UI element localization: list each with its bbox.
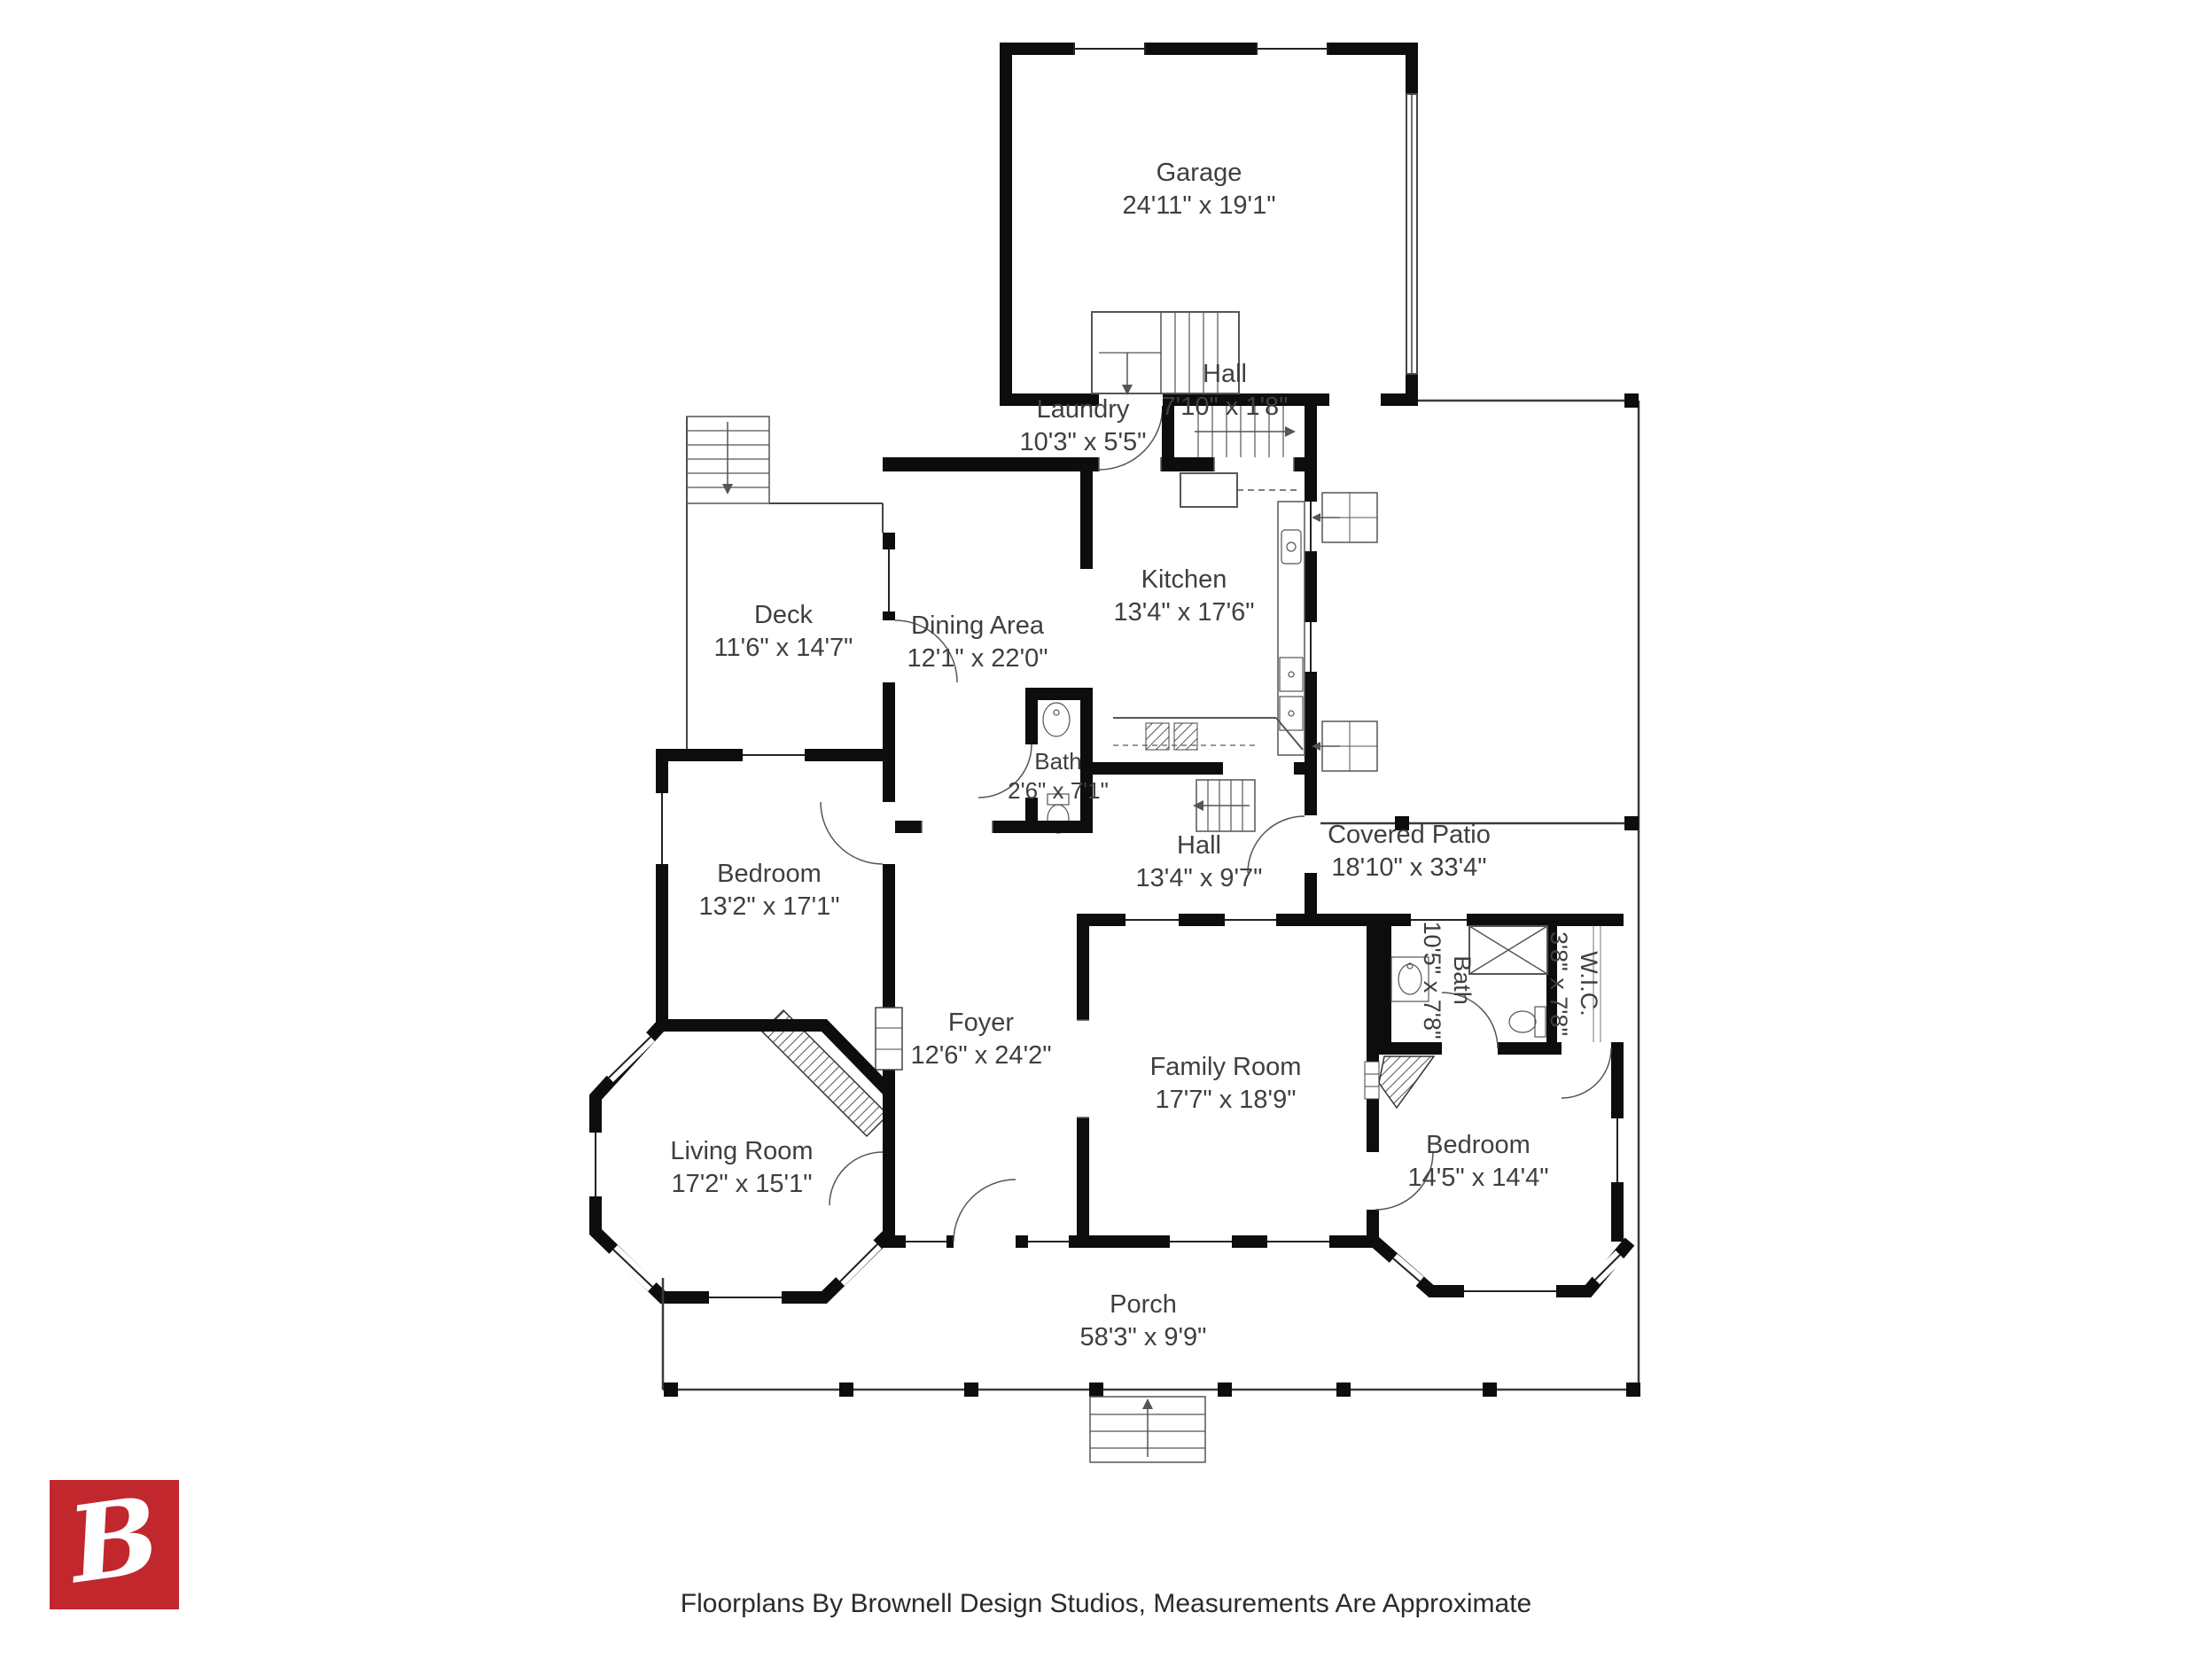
room-label-covered-patio: Covered Patio 18'10" x 33'4" <box>1328 819 1491 884</box>
room-name: Bedroom <box>1407 1129 1548 1162</box>
room-name: Garage <box>1122 157 1275 190</box>
room-label-dining: Dining Area 12'1" x 22'0" <box>907 610 1048 675</box>
room-name: Bath <box>1008 747 1109 776</box>
room-label-hall-upper: Hall 7'10" x 1'8" <box>1162 358 1289 424</box>
room-dims: 58'3" x 9'9" <box>1080 1321 1207 1354</box>
dining-west-window <box>883 549 895 611</box>
bedroom2-fireplace <box>1379 1056 1434 1108</box>
room-label-laundry: Laundry 10'3" x 5'5" <box>1020 393 1147 459</box>
room-label-hall-lower: Hall 13'4" x 9'7" <box>1136 829 1263 895</box>
room-label-bedroom-upper: Bedroom 13'2" x 17'1" <box>698 858 839 923</box>
room-name: Hall <box>1162 358 1289 391</box>
room-dims: 17'7" x 18'9" <box>1150 1084 1302 1117</box>
cased-opening-foyer-family <box>1077 1020 1089 1118</box>
room-dims: 7'10" x 1'8" <box>1162 391 1289 424</box>
deck-outline <box>687 417 883 749</box>
room-name: Bath <box>1447 921 1477 1039</box>
room-dims: 12'6" x 24'2" <box>910 1040 1051 1072</box>
patio-casement-window-1 <box>1312 493 1377 542</box>
room-dims: 10'5" x 7'8" <box>1417 921 1447 1039</box>
room-label-bath-main: Bath 10'5" x 7'8" <box>1417 921 1477 1039</box>
bedroom1-windows <box>656 749 805 864</box>
room-name: Kitchen <box>1113 564 1254 596</box>
room-label-bedroom-lower: Bedroom 14'5" x 14'4" <box>1407 1129 1548 1195</box>
bedroom2-chimney-box <box>1365 1062 1379 1099</box>
porch-steps <box>1090 1397 1205 1462</box>
lower-hall-walls <box>1093 762 1317 775</box>
deck-stairs <box>687 417 769 503</box>
room-name: W.I.C. <box>1574 931 1604 1036</box>
room-label-family-room: Family Room 17'7" x 18'9" <box>1150 1051 1302 1117</box>
room-dims: 14'5" x 14'4" <box>1407 1162 1548 1195</box>
room-dims: 18'10" x 33'4" <box>1328 852 1491 884</box>
room-label-garage: Garage 24'11" x 19'1" <box>1122 157 1275 222</box>
front-door-arc <box>954 1180 1016 1242</box>
room-name: Covered Patio <box>1328 819 1491 852</box>
room-name: Deck <box>714 599 853 632</box>
room-name: Dining Area <box>907 610 1048 643</box>
living-door-arc <box>829 1152 883 1205</box>
room-name: Hall <box>1136 829 1263 862</box>
room-dims: 3'8" x 7'8" <box>1544 931 1574 1036</box>
bedroom1-door-arc <box>821 802 883 864</box>
room-dims: 13'4" x 17'6" <box>1113 596 1254 629</box>
room-label-bath-small: Bath 2'6" x 7'1" <box>1008 747 1109 806</box>
room-label-kitchen: Kitchen 13'4" x 17'6" <box>1113 564 1254 629</box>
room-label-porch: Porch 58'3" x 9'9" <box>1080 1289 1207 1354</box>
garage-door <box>1406 94 1417 374</box>
room-dims: 13'2" x 17'1" <box>698 891 839 923</box>
foyer-windows <box>906 1235 1069 1248</box>
dining-kitchen-partial-wall <box>1080 471 1093 569</box>
logo-letter: B <box>63 1483 165 1599</box>
room-name: Laundry <box>1020 393 1147 426</box>
room-dims: 13'4" x 9'7" <box>1136 862 1263 895</box>
floorplan-drawing <box>0 0 2212 1659</box>
patio-casement-window-2 <box>1312 721 1377 771</box>
room-label-living-room: Living Room 17'2" x 15'1" <box>670 1135 813 1201</box>
cased-opening-dining <box>922 821 993 833</box>
room-name: Family Room <box>1150 1051 1302 1084</box>
basement-stairs <box>1193 780 1255 831</box>
room-name: Foyer <box>910 1007 1051 1040</box>
room-label-deck: Deck 11'6" x 14'7" <box>714 599 853 665</box>
room-dims: 12'1" x 22'0" <box>907 643 1048 675</box>
room-dims: 10'3" x 5'5" <box>1020 426 1147 459</box>
dining-south-wall <box>895 821 1093 833</box>
room-dims: 11'6" x 14'7" <box>714 632 853 665</box>
room-dims: 17'2" x 15'1" <box>670 1168 813 1201</box>
room-label-foyer: Foyer 12'6" x 24'2" <box>910 1007 1051 1072</box>
room-label-wic: W.I.C. 3'8" x 7'8" <box>1544 931 1604 1036</box>
room-dims: 24'11" x 19'1" <box>1122 190 1275 222</box>
footer-credit: Floorplans By Brownell Design Studios, M… <box>0 1589 2212 1619</box>
room-dims: 2'6" x 7'1" <box>1008 776 1109 806</box>
room-name: Living Room <box>670 1135 813 1168</box>
bedroom2-bay-walls <box>1373 1240 1630 1291</box>
foyer-chimney-box <box>876 1008 902 1070</box>
wic-door-arc <box>1562 1048 1611 1098</box>
floorplan-page: Garage 24'11" x 19'1" Hall 7'10" x 1'8" … <box>0 0 2212 1659</box>
room-name: Porch <box>1080 1289 1207 1321</box>
room-name: Bedroom <box>698 858 839 891</box>
garage-walls <box>1000 43 1418 406</box>
kitchen-peninsula <box>1113 718 1303 750</box>
